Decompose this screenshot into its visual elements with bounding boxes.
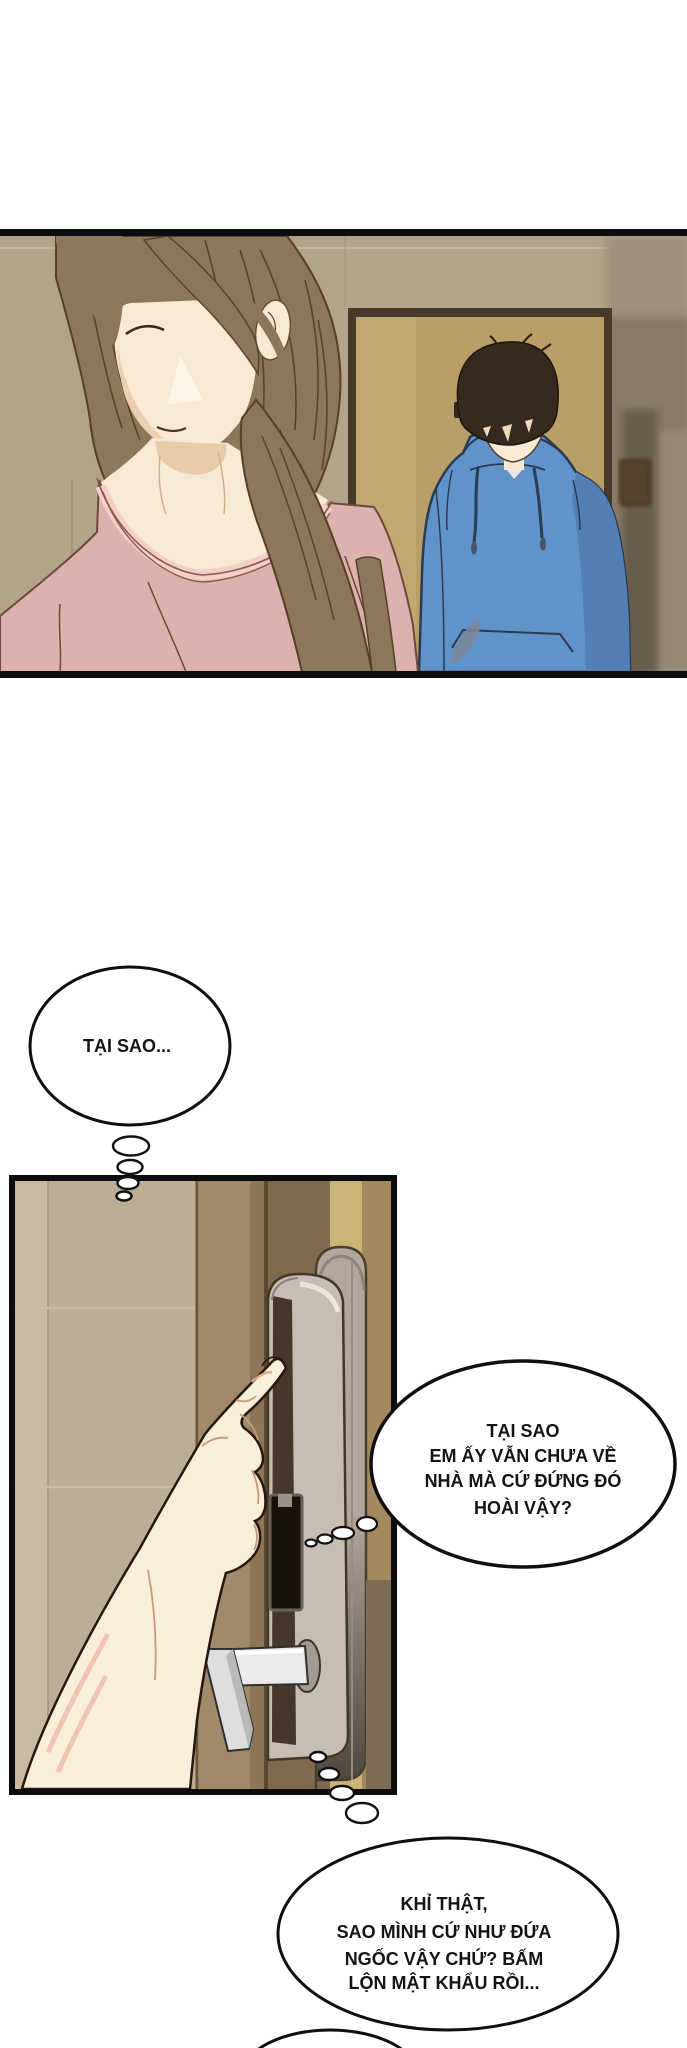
svg-text:NHÀ MÀ CỨ ĐỨNG ĐÓ: NHÀ MÀ CỨ ĐỨNG ĐÓ: [425, 1470, 622, 1491]
svg-text:TẠI SAO: TẠI SAO: [486, 1421, 559, 1441]
svg-text:HOÀI VẬY?: HOÀI VẬY?: [474, 1497, 572, 1518]
svg-text:KHỈ THẬT,: KHỈ THẬT,: [401, 1893, 488, 1914]
svg-text:SAO MÌNH CỨ NHƯ ĐỨA: SAO MÌNH CỨ NHƯ ĐỨA: [337, 1921, 552, 1942]
svg-text:NGỐC VẬY CHỨ? BẤM: NGỐC VẬY CHỨ? BẤM: [345, 1948, 544, 1969]
svg-text:TẠI SAO...: TẠI SAO...: [83, 1036, 171, 1056]
svg-text:EM ẤY VẪN CHƯA VỀ: EM ẤY VẪN CHƯA VỀ: [430, 1445, 617, 1466]
svg-text:LỘN MẬT KHẨU RỒI...: LỘN MẬT KHẨU RỒI...: [349, 1972, 540, 1993]
